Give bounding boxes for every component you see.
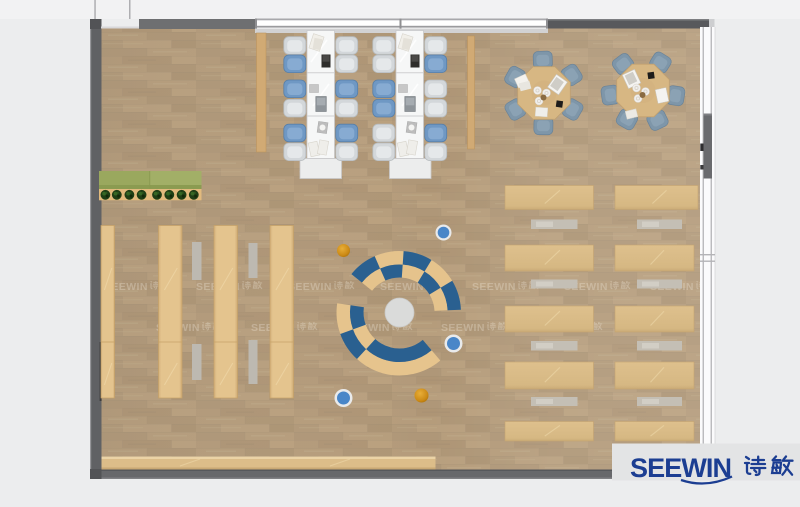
svg-text:SEEWIN: SEEWIN xyxy=(380,281,424,293)
svg-text:SEEWIN: SEEWIN xyxy=(472,281,516,293)
svg-text:SEEWIN: SEEWIN xyxy=(441,322,485,334)
svg-text:SEEWIN: SEEWIN xyxy=(630,453,731,483)
svg-text:SEEWIN: SEEWIN xyxy=(288,281,332,293)
